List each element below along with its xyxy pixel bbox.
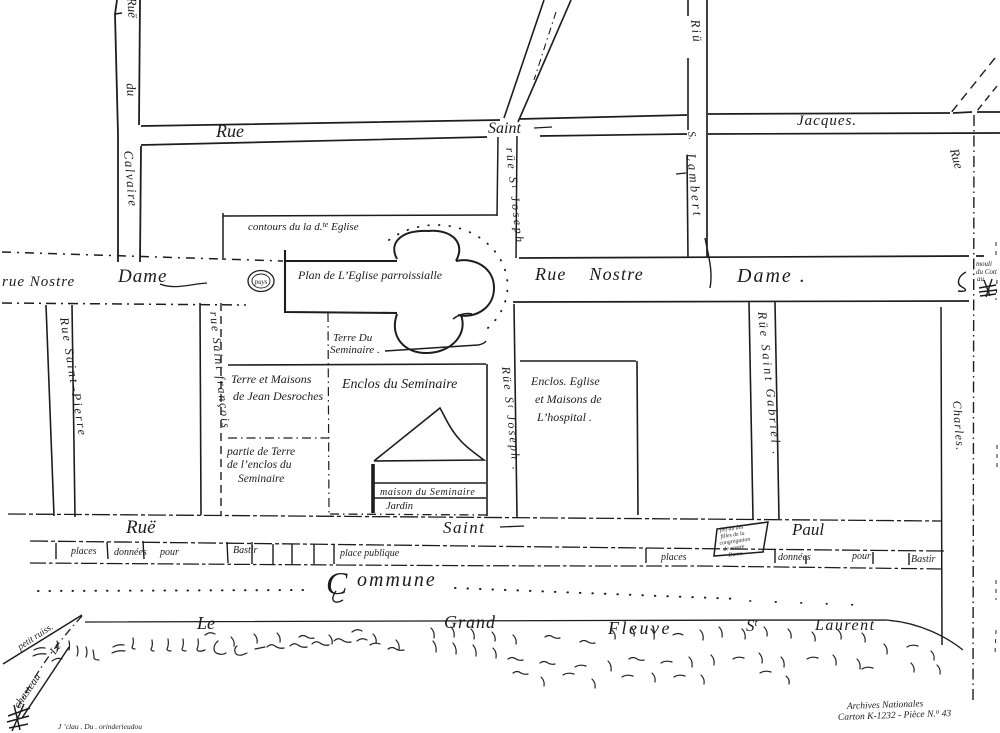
svg-text:place publique: place publique xyxy=(339,548,400,559)
svg-text:et Maisons de: et Maisons de xyxy=(535,392,602,406)
svg-text:Ruë: Ruë xyxy=(124,0,140,18)
svg-text:Fleuve: Fleuve xyxy=(607,618,672,638)
svg-text:partie de Terre: partie de Terre xyxy=(226,446,295,458)
svg-text:de Jean Desroches: de Jean Desroches xyxy=(233,389,324,403)
svg-text:Seminaire: Seminaire xyxy=(238,473,284,485)
svg-text:Rue: Rue xyxy=(215,121,244,141)
svg-text:Terre Du: Terre Du xyxy=(333,332,373,344)
svg-text:Le: Le xyxy=(196,613,215,633)
svg-text:Rue Nostre: Rue Nostre xyxy=(534,264,644,284)
svg-text:Dame .: Dame . xyxy=(736,265,807,287)
svg-text:Terre et Maisons: Terre et Maisons xyxy=(231,372,312,386)
svg-text:données: données xyxy=(778,552,811,563)
svg-text:Plan de L’Eglise parroissia: Plan de L’Eglise parroissialle xyxy=(297,268,443,282)
svg-text:Enclos. Eglise: Enclos. Eglise xyxy=(530,374,600,388)
svg-text:au: au xyxy=(977,275,985,283)
svg-text:Riü: Riü xyxy=(688,18,706,44)
svg-text:J ’clau . Du . orinderieudou: J ’clau . Du . orinderieudou xyxy=(58,722,142,731)
svg-text:contours du la d.te Eglise: contours du la d.te Eglise xyxy=(248,220,359,233)
svg-text:données: données xyxy=(114,547,147,558)
svg-text:ommune: ommune xyxy=(357,569,437,591)
svg-text:Bastir: Bastir xyxy=(233,545,258,556)
svg-text:Bastir: Bastir xyxy=(911,554,936,565)
svg-text:Ruë: Ruë xyxy=(125,517,156,538)
svg-text:Enclos du Seminaire: Enclos du Seminaire xyxy=(341,377,457,392)
svg-text:Grand: Grand xyxy=(444,612,496,632)
svg-text:maison du Seminaire: maison du Seminaire xyxy=(380,487,475,498)
svg-text:Jacques.: Jacques. xyxy=(797,113,857,129)
svg-text:Laurent: Laurent xyxy=(814,617,876,634)
svg-text:mouli: mouli xyxy=(976,260,992,268)
svg-text:C: C xyxy=(326,565,348,601)
svg-text:Seminaire .: Seminaire . xyxy=(330,344,380,356)
svg-text:Paul: Paul xyxy=(791,520,824,539)
svg-text:places: places xyxy=(660,552,687,563)
svg-text:puys: puys xyxy=(254,278,268,286)
svg-text:Saint: Saint xyxy=(443,518,485,537)
svg-text:pour: pour xyxy=(159,547,179,558)
svg-text:Jardin: Jardin xyxy=(386,501,413,512)
svg-text:Saint: Saint xyxy=(488,120,521,137)
svg-text:L’hospital .: L’hospital . xyxy=(536,410,592,424)
svg-text:de l’enclos du: de l’enclos du xyxy=(227,459,292,471)
svg-text:rue Nostre: rue Nostre xyxy=(2,274,75,290)
svg-text:Dame: Dame xyxy=(117,266,167,287)
svg-text:pour: pour xyxy=(851,551,871,562)
svg-text:du: du xyxy=(123,82,139,97)
svg-text:places: places xyxy=(70,546,97,557)
